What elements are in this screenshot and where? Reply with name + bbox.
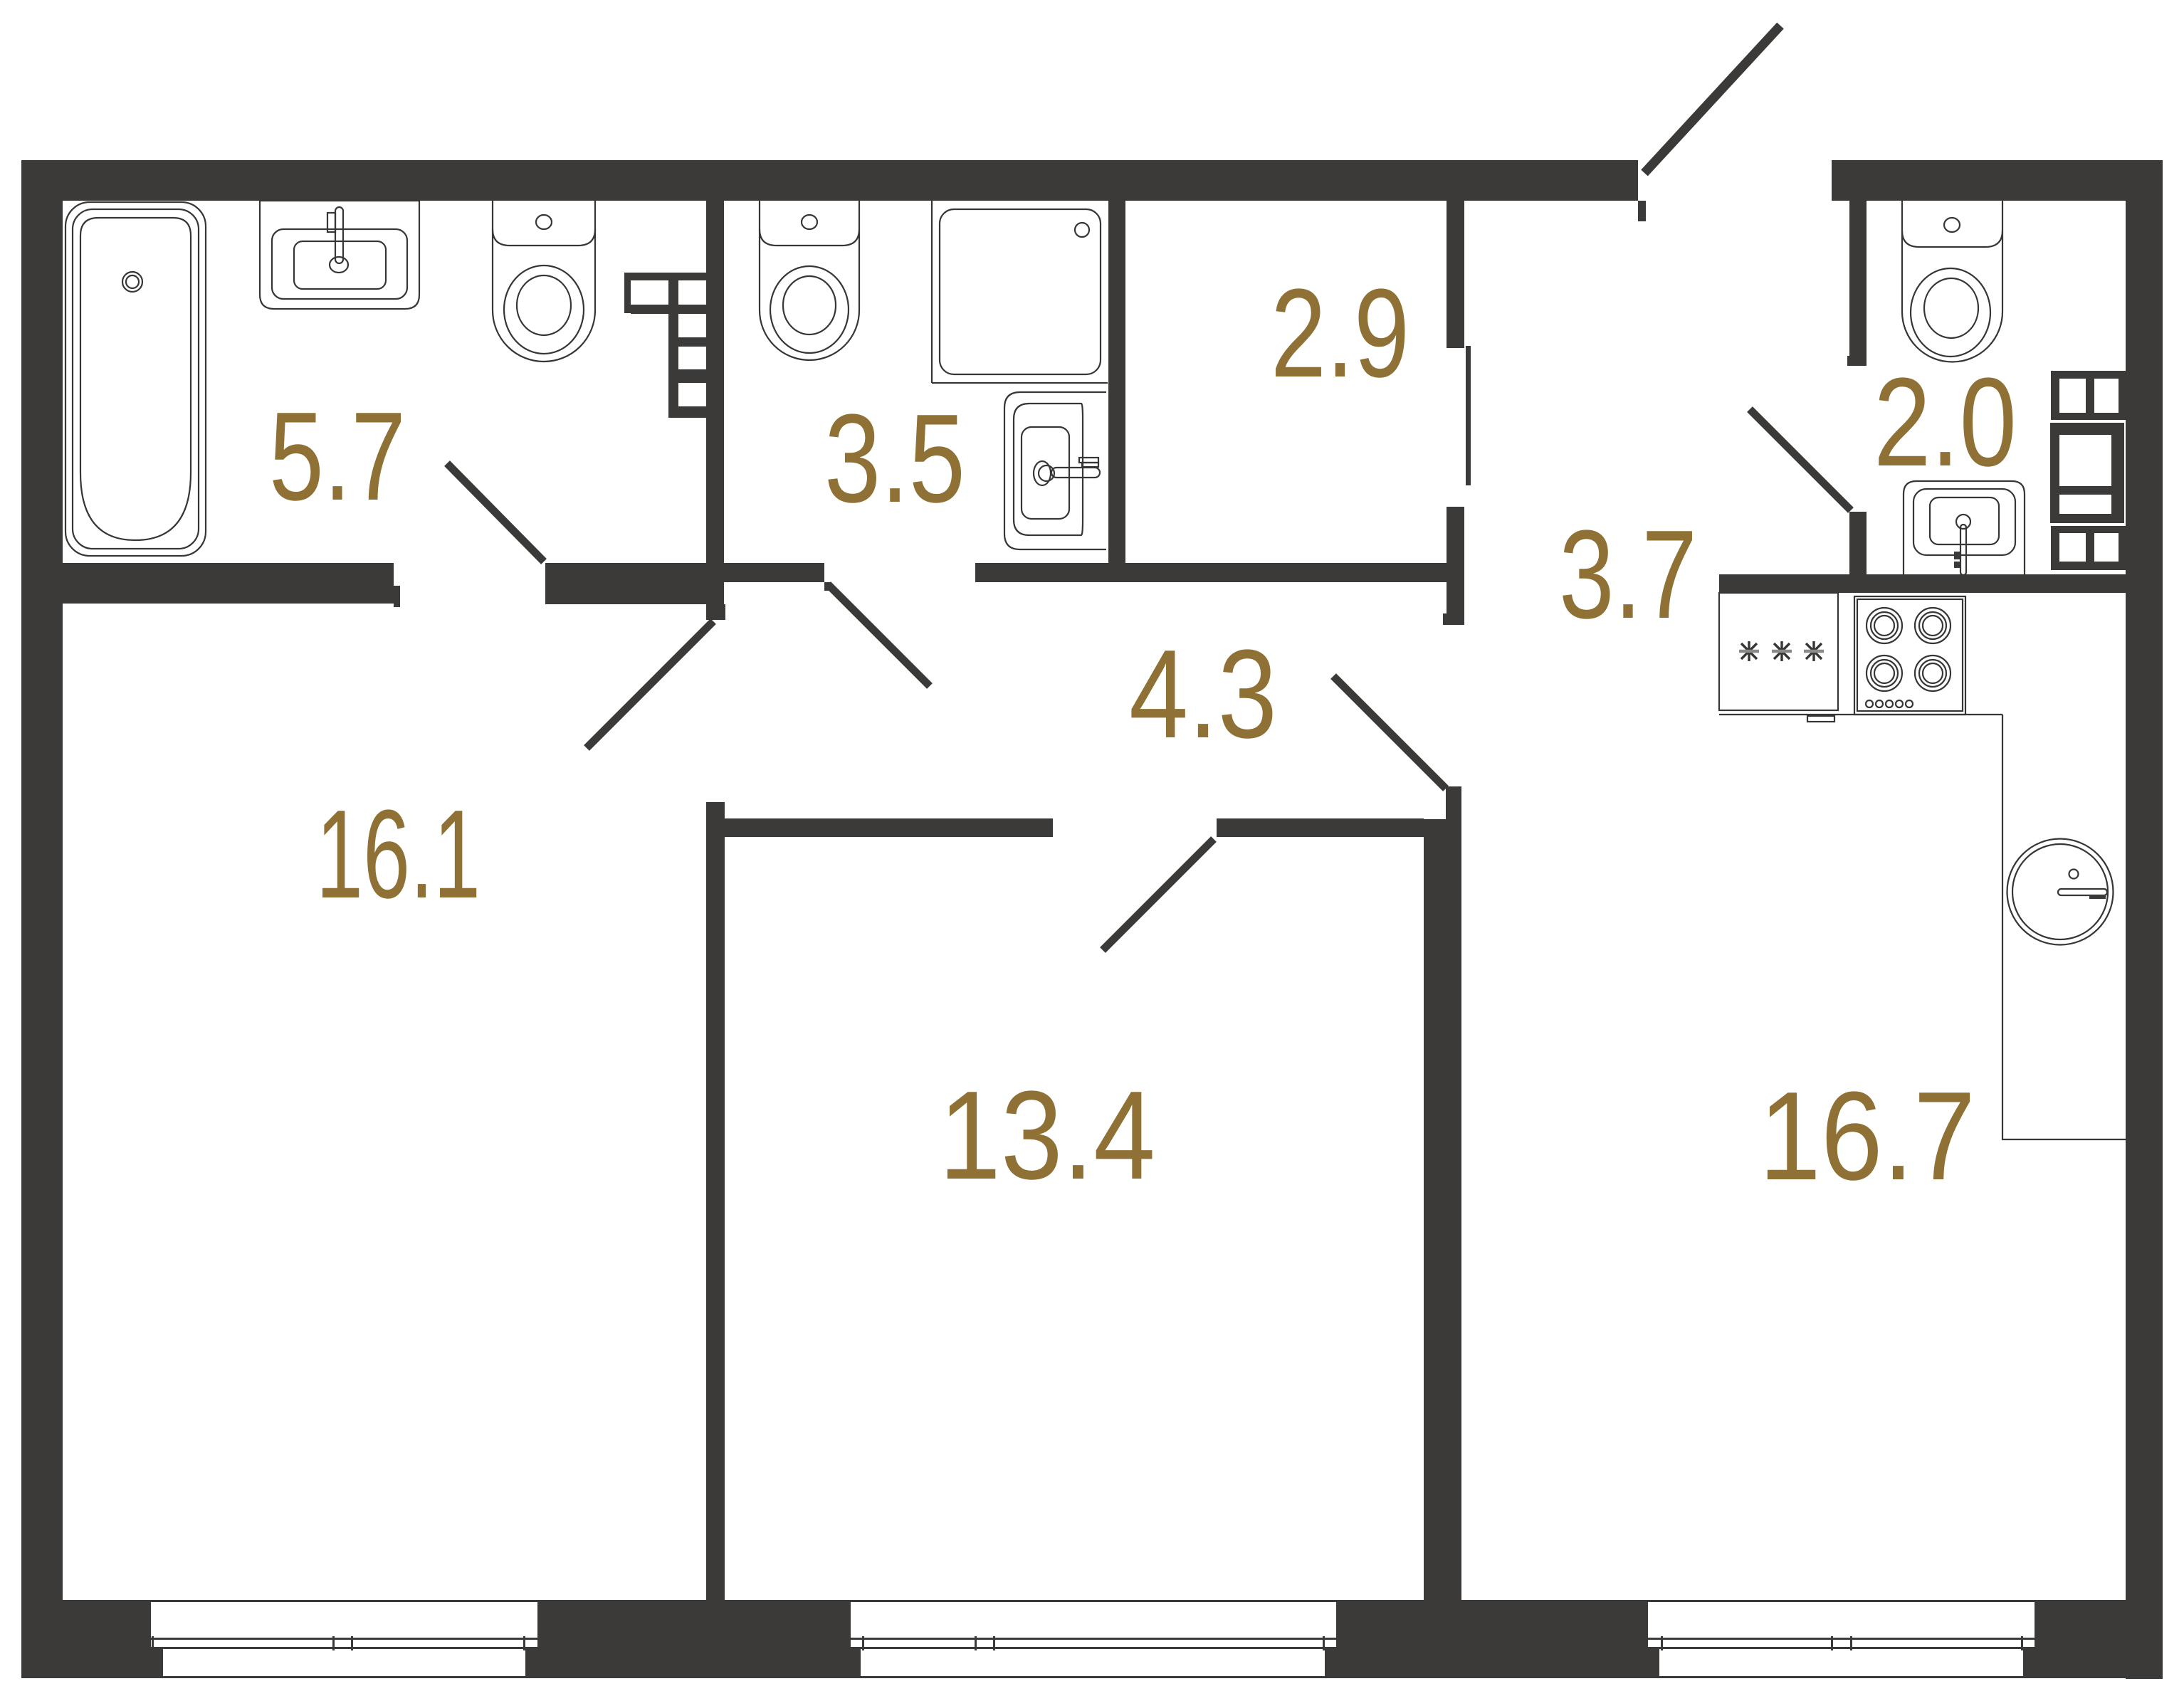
svg-text:16.1: 16.1 — [316, 784, 481, 925]
svg-text:13.4: 13.4 — [939, 1065, 1155, 1206]
svg-text:3.7: 3.7 — [1559, 504, 1697, 645]
svg-text:4.3: 4.3 — [1129, 623, 1277, 764]
svg-text:2.0: 2.0 — [1874, 352, 2017, 493]
svg-text:5.7: 5.7 — [269, 386, 406, 527]
svg-text:2.9: 2.9 — [1271, 263, 1409, 404]
svg-text:16.7: 16.7 — [1759, 1065, 1975, 1206]
svg-text:3.5: 3.5 — [824, 388, 965, 529]
